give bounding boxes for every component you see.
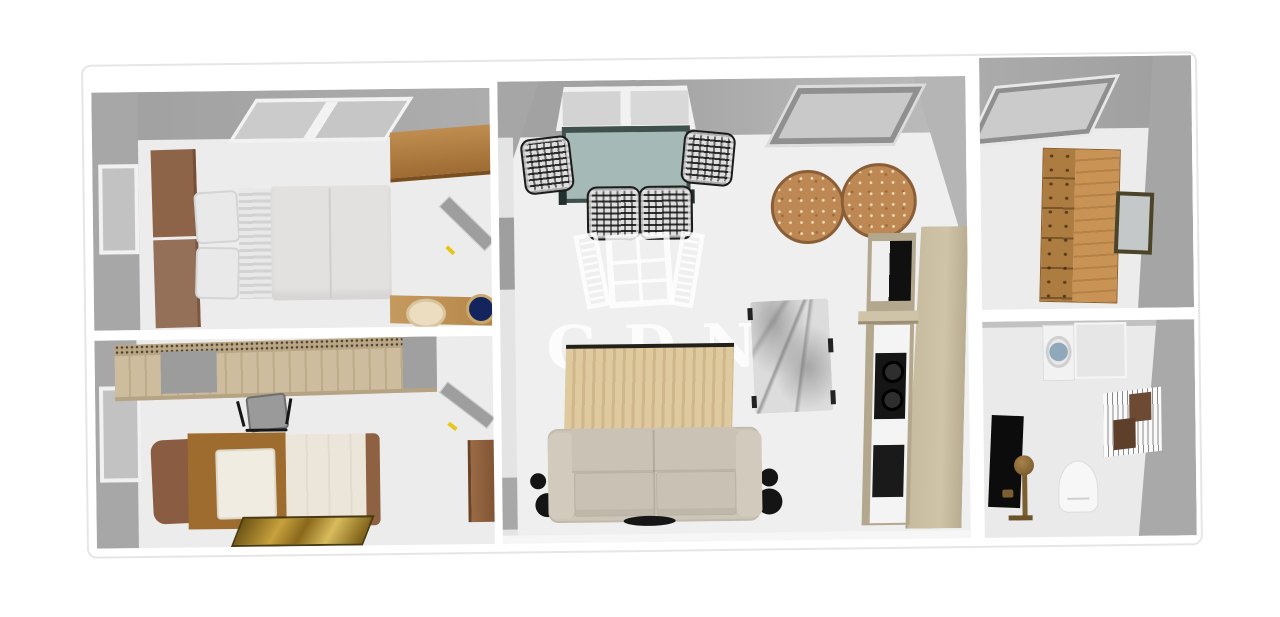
rattan-chair	[639, 185, 694, 240]
burner-knob	[881, 389, 903, 411]
sofa-arm	[734, 431, 763, 517]
toilet	[1058, 460, 1099, 512]
brass-pipe	[1022, 473, 1028, 517]
table-leg	[751, 396, 757, 408]
rattan-chair	[587, 186, 642, 241]
round-jute-rug	[770, 170, 845, 245]
cream-duvet	[286, 433, 369, 526]
headboard-panel	[151, 149, 199, 237]
sofa	[548, 427, 761, 524]
top-window	[228, 97, 414, 143]
unit-front-column	[862, 233, 917, 526]
room-living-dining: GDN	[497, 76, 971, 544]
floor-lamp	[760, 468, 778, 486]
door-handle	[445, 245, 455, 255]
top-window	[555, 85, 696, 131]
striped-sheet	[239, 189, 272, 299]
room-bathroom	[982, 319, 1197, 538]
counter	[1074, 322, 1127, 379]
white-pillow	[215, 448, 277, 520]
wall-left-pier	[499, 218, 515, 290]
pillow	[193, 190, 240, 245]
table-leg	[559, 191, 567, 205]
washing-machine	[1042, 325, 1075, 381]
gold-rug	[231, 515, 375, 547]
table-leg	[828, 338, 834, 352]
desk-gray-side	[402, 336, 437, 389]
desk-gray-module	[161, 350, 217, 394]
double-bed	[193, 185, 392, 301]
pillow	[195, 247, 240, 300]
open-door	[439, 381, 495, 428]
brown-towel	[1113, 418, 1135, 451]
rattan-chair	[519, 134, 575, 195]
unit-white-column	[870, 325, 910, 524]
dresser-top	[1072, 150, 1119, 303]
wall-left-pier	[502, 478, 518, 530]
table-leg	[830, 390, 836, 404]
room-dressing	[979, 55, 1194, 310]
bed-foot-board	[366, 433, 381, 525]
brass-base	[1009, 515, 1033, 520]
floor-lamp	[530, 473, 546, 489]
right-wing	[979, 55, 1197, 538]
side-cabinet	[468, 440, 495, 522]
dresser-drawers	[1040, 149, 1075, 302]
appliance-lower	[872, 445, 904, 497]
burner-knob	[882, 361, 904, 383]
towel-rack	[1103, 387, 1162, 458]
open-door	[439, 196, 492, 251]
wall-picture	[1114, 191, 1154, 254]
chair-arm	[236, 401, 245, 427]
floor-grille	[624, 516, 676, 527]
door-handle	[447, 422, 457, 431]
unit-shelf	[858, 311, 918, 325]
toilet-lid-line	[1067, 498, 1089, 500]
left-wing	[91, 88, 495, 549]
headboard	[151, 149, 198, 328]
washer-door	[1045, 336, 1071, 368]
wardrobe-desk	[114, 336, 437, 401]
wall-bottom	[503, 530, 971, 544]
window-panes	[562, 90, 688, 126]
table-leg	[747, 308, 753, 320]
room-bedroom-single	[94, 336, 495, 549]
sofa-cushion	[574, 472, 655, 517]
left-window	[98, 164, 139, 254]
skylight	[979, 77, 1116, 145]
floor-plan-render: GDN	[0, 0, 1280, 617]
marble-table	[750, 298, 833, 414]
chair-seat	[245, 392, 289, 432]
striped-area-rug	[564, 343, 734, 439]
rattan-chair	[680, 129, 737, 188]
wooden-dresser	[1039, 148, 1120, 304]
room-bedroom-double	[91, 88, 492, 331]
office-chair	[237, 392, 294, 437]
chair-base	[245, 428, 287, 432]
navy-bowl	[466, 294, 492, 324]
appliance-top	[871, 241, 912, 302]
wall-shelf	[390, 124, 491, 182]
oven	[874, 353, 906, 419]
sofa-cushion	[656, 471, 737, 516]
brass-knob	[1002, 489, 1013, 497]
kitchen-tall-unit	[861, 226, 968, 529]
apartment-plan: GDN	[81, 51, 1203, 559]
